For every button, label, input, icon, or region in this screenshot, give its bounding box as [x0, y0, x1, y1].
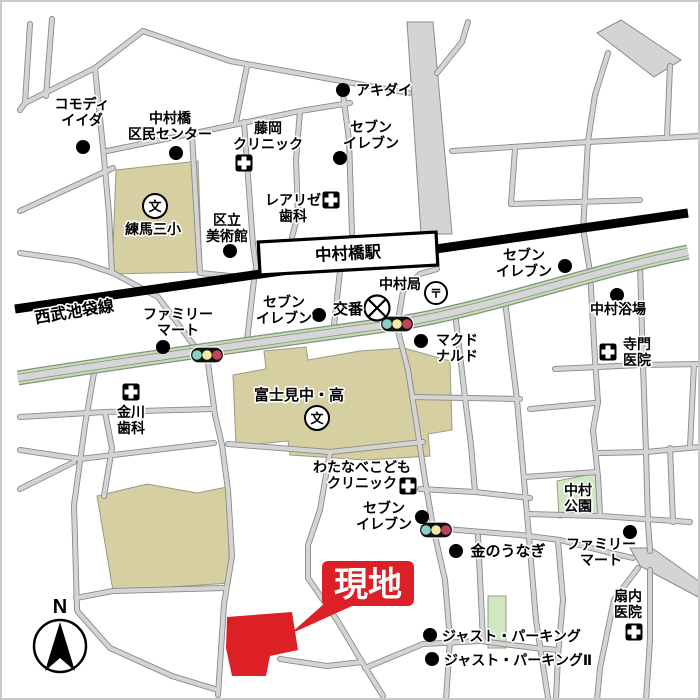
seven-eleven-station-label: セブンイレブン	[256, 294, 312, 326]
fujioka-clinic-hospital-cross-icon	[236, 155, 253, 172]
kin-no-unagi-dot-icon	[449, 544, 463, 558]
nerima-daisan-elementary-label: 練馬三小	[125, 221, 181, 237]
nakamura-post-office-label: 中村局	[379, 276, 421, 292]
fujimi-junior-senior-high-label: 富士見中・高	[254, 386, 344, 404]
just-parking-label: ジャスト・パーキング	[442, 628, 581, 644]
oginai-clinic-label: 扇内医院	[614, 588, 642, 620]
kanagawa-dental-label: 金川歯科	[116, 404, 145, 436]
just-parking-2-dot-icon	[425, 652, 439, 666]
akidai-label: アキダイ	[356, 82, 412, 98]
family-mart-west-dot-icon	[156, 340, 170, 354]
compass-north-label: N	[53, 596, 67, 618]
seven-eleven-east-dot-icon	[558, 259, 572, 273]
area-map: 中村橋駅 現地 コモディイイダ中村橋区民センター藤岡クリニックアキダイセブンイレ…	[0, 0, 700, 700]
traffic-light-icon	[191, 347, 224, 363]
terakado-clinic-label: 寺門医院	[623, 336, 651, 368]
nakamura-park-label: 中村公園	[564, 482, 592, 514]
mcdonalds-dot-icon	[414, 334, 428, 348]
nakamura-yokujo-dot-icon	[610, 288, 624, 302]
watanabe-kids-clinic-label: わたなべこどもクリニック	[313, 459, 411, 491]
oginai-clinic-hospital-cross-icon	[626, 624, 643, 641]
svg-text:〒: 〒	[430, 287, 442, 301]
seven-eleven-north-label: セブンイレブン	[343, 119, 399, 151]
terakado-clinic-hospital-cross-icon	[600, 344, 617, 361]
nakamura-park: 中村公園	[564, 482, 592, 514]
nakamura-nishi-elementary-grounds	[97, 484, 230, 591]
commodi-iida-label: コモディイイダ	[54, 96, 109, 128]
map-canvas: 中村橋駅 現地 コモディイイダ中村橋区民センター藤岡クリニックアキダイセブンイレ…	[0, 0, 700, 700]
nakamura-yokujo-label: 中村浴場	[590, 301, 646, 317]
fujimi-junior-senior-high-school-icon: 文	[305, 406, 329, 430]
akidai-dot-icon	[336, 83, 350, 97]
site-callout-label: 現地	[334, 566, 402, 604]
mcdonalds-label: マクドナルド	[436, 332, 478, 364]
seven-eleven-east-label: セブンイレブン	[496, 247, 552, 279]
koban-koban-icon	[365, 296, 390, 321]
commodi-iida-dot-icon	[76, 140, 90, 154]
kin-no-unagi-label: 金のうなぎ	[469, 542, 545, 560]
svg-text:文: 文	[148, 199, 162, 214]
svg-text:文: 文	[310, 411, 324, 426]
realize-dental-hospital-cross-icon	[323, 192, 340, 209]
watanabe-kids-clinic-hospital-cross-icon	[400, 478, 417, 495]
koban-label: 交番	[333, 300, 364, 318]
seven-eleven-north-dot-icon	[333, 151, 347, 165]
nakamura-post-office-post-office-icon: 〒	[425, 282, 447, 304]
kanagawa-dental-hospital-cross-icon	[123, 384, 140, 401]
just-parking-2: ジャスト・パーキングⅡ	[425, 652, 592, 668]
nakamurabashi-kumin-center-dot-icon	[169, 146, 183, 160]
seven-eleven-station-dot-icon	[312, 308, 326, 322]
kuritsu-art-museum-dot-icon	[223, 244, 237, 258]
just-parking: ジャスト・パーキング	[423, 628, 581, 644]
just-parking-2-label: ジャスト・パーキングⅡ	[444, 652, 592, 668]
seven-eleven-south-label: セブンイレブン	[356, 500, 412, 532]
traffic-light-icon	[420, 522, 453, 538]
seven-eleven-south-dot-icon	[415, 510, 429, 524]
just-parking-dot-icon	[423, 628, 437, 642]
nerima-daisan-elementary-school-icon: 文	[143, 194, 167, 218]
